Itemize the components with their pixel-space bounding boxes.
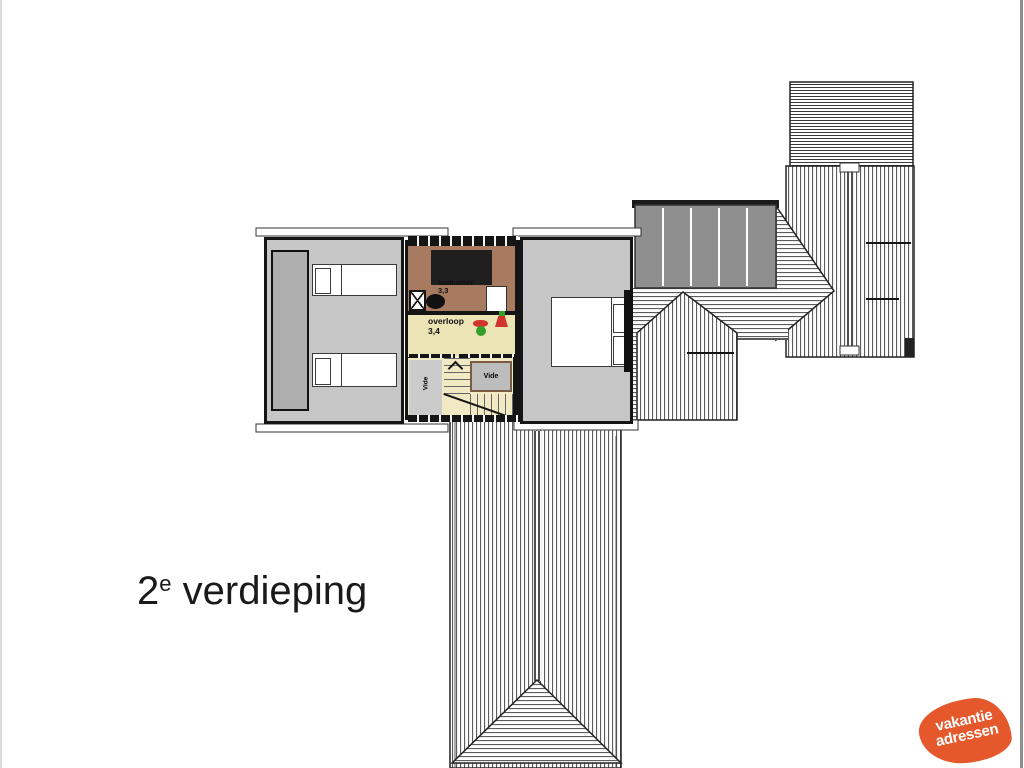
landing-name: overloop [428,316,464,326]
icon-red-body [495,316,508,327]
bedroom-right [520,237,633,424]
shaft-box [409,290,426,311]
void-left: Vide [409,360,442,415]
title-word: verdieping [183,569,368,613]
stairwell-bottom-wall [408,415,520,422]
icon-green-dot [476,326,486,336]
bedroom-right-wall-band [624,290,633,372]
bathroom-unit: m² [438,298,445,304]
void-box: Vide [470,361,512,392]
bedroom-left [264,237,404,424]
bathroom-label: badkamer 3,3 m² [438,279,473,304]
double-bed [551,297,627,367]
bed-divider [611,298,612,366]
roof-ridge-cap-bottom [840,346,859,355]
page-right-edge [1020,0,1023,768]
fire-extinguisher-icon [472,319,490,337]
slide-canvas: badkamer 3,3 m² overloop 3,4 Vide Vide [0,0,1024,768]
solar-panel-block [635,205,776,288]
page-title: 2e verdieping [137,569,367,614]
pillow [315,268,331,294]
eave-bar-right-top [513,228,641,236]
roof-edge-wall [905,338,914,357]
pillow [315,358,331,385]
bathroom-door [486,286,507,312]
bed-divider [341,265,342,295]
page-left-edge [0,0,2,768]
wardrobe [271,250,309,411]
roof-ridge-cap-top [840,163,859,172]
eave-bar-left-bottom [256,424,448,432]
void-box-label: Vide [484,373,499,380]
roof-top-right-section [790,82,913,166]
bathroom-area: 3,3 [438,286,448,295]
single-bed-2 [312,353,397,387]
void-left-label: Vide [422,377,429,391]
title-superscript: e [159,571,171,596]
title-number: 2 [137,569,159,613]
eave-bar-left-top [256,228,448,236]
single-bed-1 [312,264,397,296]
landing-area: 3,4 [428,326,440,336]
smoke-detector-icon [495,310,509,328]
landing-label: overloop 3,4 [428,317,464,336]
bed-divider [341,354,342,386]
stairwell-right-wall [513,357,520,420]
